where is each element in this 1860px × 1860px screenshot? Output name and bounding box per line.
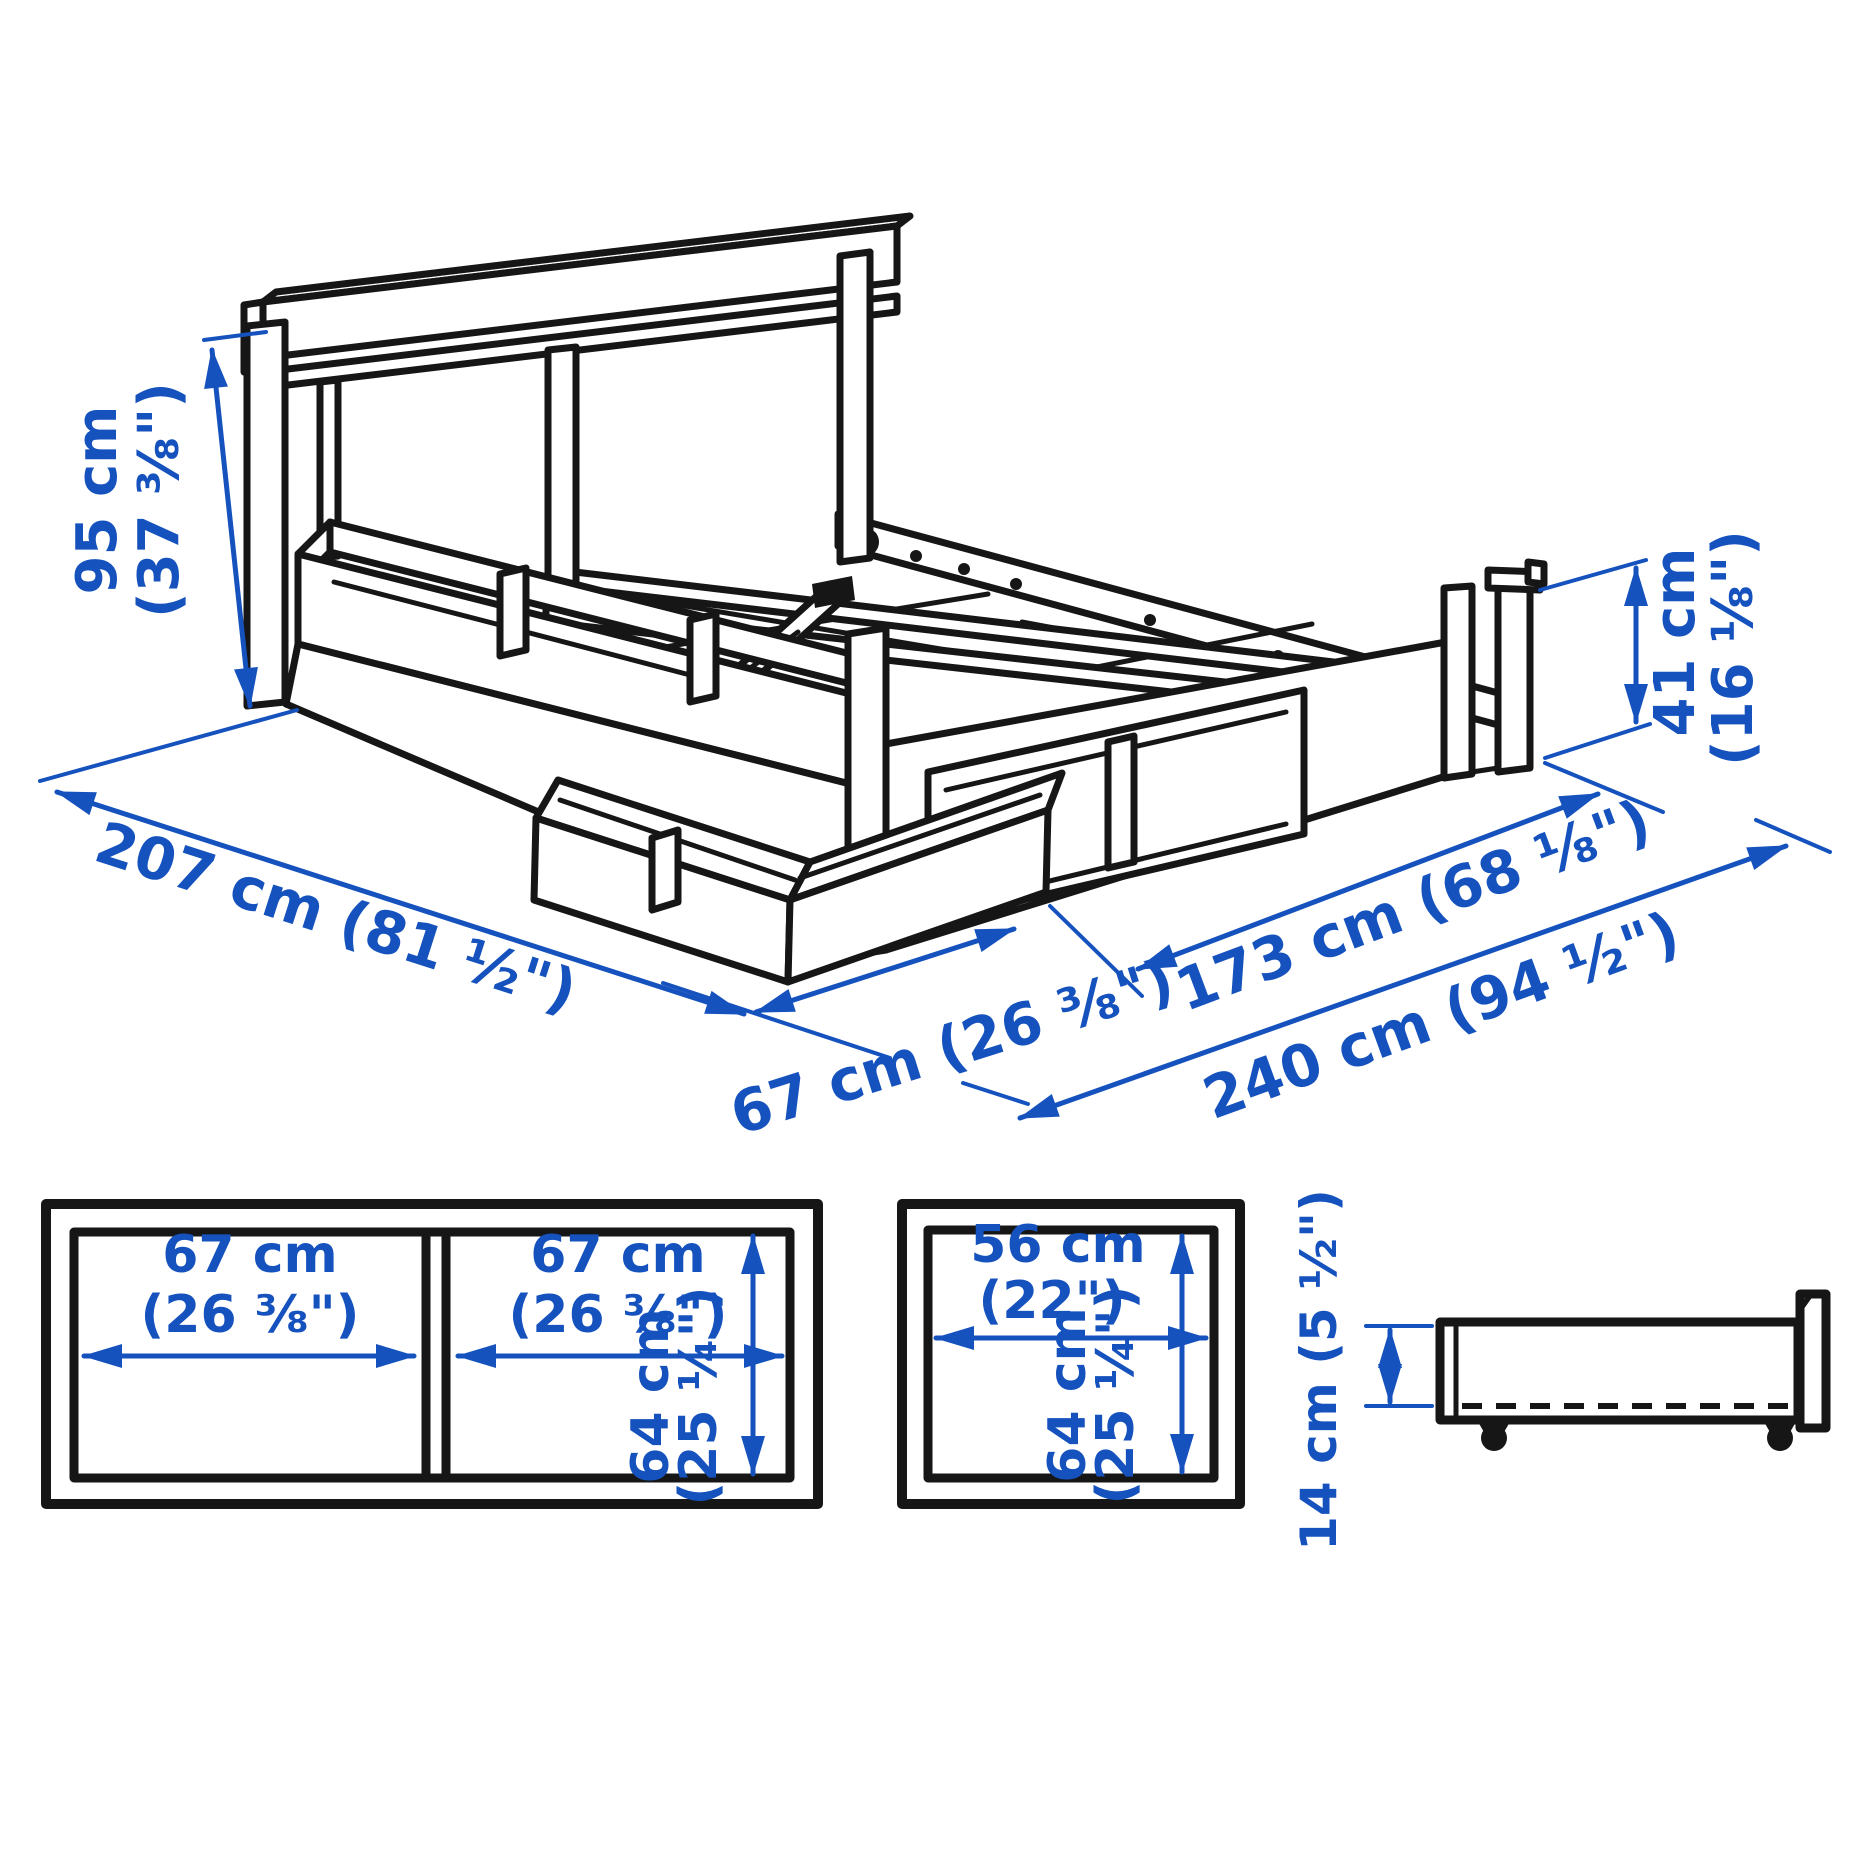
label-footboard-height-in: (16 ⅛") bbox=[1701, 530, 1766, 766]
label-footboard-height-cm: 41 cm bbox=[1643, 548, 1708, 737]
label-side-height: 14 cm (5 ½") bbox=[1290, 1189, 1348, 1551]
storage-box-double-top-view: 67 cm (26 ⅜") 67 cm (26 ⅜") 64 cm (25 ¼"… bbox=[46, 1204, 818, 1505]
footboard bbox=[1444, 562, 1544, 778]
bed-dimension-diagram: 95 cm (37 ⅜") 207 cm (81 ½") 67 cm (26 ⅜… bbox=[0, 0, 1860, 1860]
label-left-width-cm: 67 cm bbox=[162, 1225, 337, 1285]
extension-line bbox=[1540, 560, 1646, 590]
label-depth-in: (25 ¼") bbox=[669, 1287, 729, 1506]
product-dimension-sheet: 95 cm (37 ⅜") 207 cm (81 ½") 67 cm (26 ⅜… bbox=[0, 0, 1860, 1860]
extension-line bbox=[1756, 820, 1830, 852]
label-bed-length: 207 cm (81 ½") bbox=[87, 808, 584, 1026]
label-headboard-height-cm: 95 cm bbox=[65, 406, 130, 595]
label-box-depth-in: (25 ¼") bbox=[1086, 1286, 1146, 1505]
label-box-width-cm: 56 cm bbox=[970, 1215, 1145, 1275]
extension-line bbox=[40, 710, 297, 781]
label-headboard-height-in: (37 ⅜") bbox=[127, 382, 192, 618]
extension-line bbox=[963, 1083, 1028, 1104]
caster-left bbox=[1477, 1420, 1511, 1451]
bed-perspective-drawing bbox=[244, 216, 1544, 982]
caster-right bbox=[1763, 1420, 1797, 1451]
extension-line bbox=[1545, 724, 1650, 758]
dimension-footboard-height: 41 cm (16 ⅛") bbox=[1540, 530, 1766, 766]
storage-box-single-top-view: 56 cm (22") 64 cm (25 ¼") bbox=[902, 1204, 1240, 1504]
bed-rail-panel bbox=[1800, 1294, 1826, 1428]
label-left-width-in: (26 ⅜") bbox=[141, 1285, 360, 1345]
drawer-side-view: 14 cm (5 ½") bbox=[1290, 1189, 1826, 1551]
label-right-width-cm: 67 cm bbox=[530, 1225, 705, 1285]
dimension-headboard-height: 95 cm (37 ⅜") bbox=[65, 332, 266, 706]
